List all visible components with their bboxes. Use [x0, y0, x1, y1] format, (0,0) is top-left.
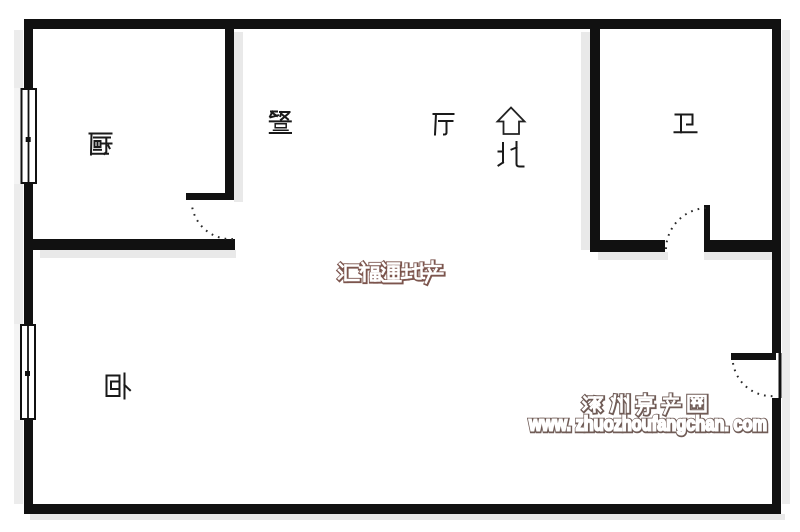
svg-text:www. zhuozhoufangchan. com: www. zhuozhoufangchan. com [528, 414, 767, 436]
